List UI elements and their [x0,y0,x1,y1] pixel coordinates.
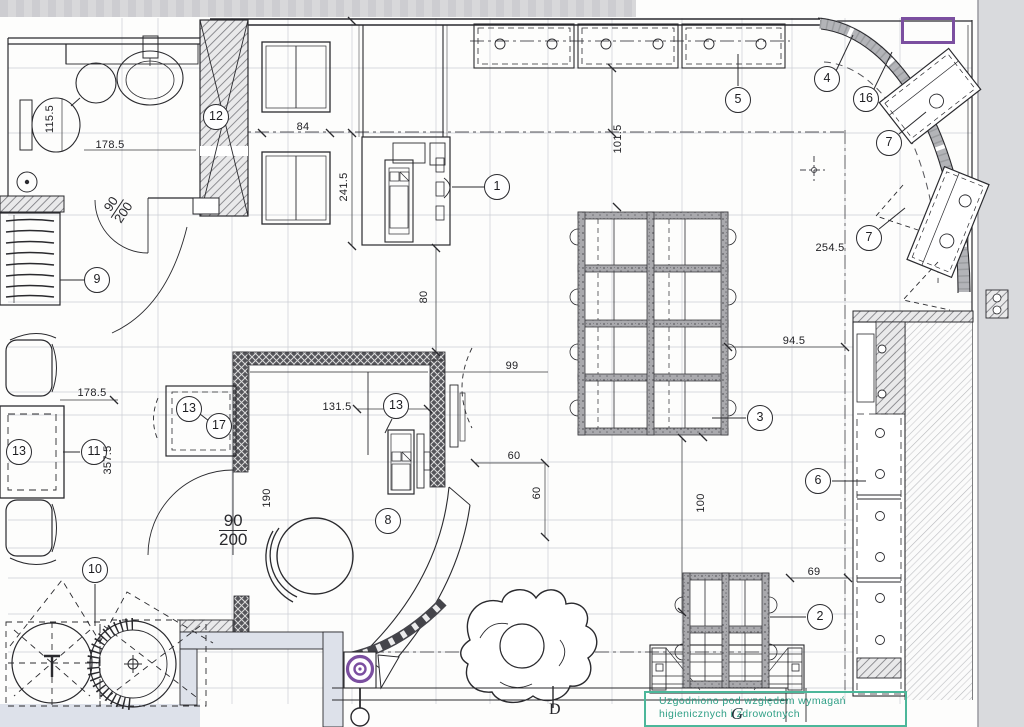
callout-12: 12 [203,104,229,130]
dim-84: 84 [281,121,325,133]
door-width: 90 [219,512,247,531]
walls [0,19,972,700]
callout-7a: 7 [876,130,902,156]
callout-1: 1 [484,174,510,200]
floor-plan-scan: 1 2 3 4 5 6 7 7 8 9 10 11 12 13 13 13 16… [0,0,1024,727]
dim-60-v: 60 [531,471,543,515]
table-block-2 [675,573,777,688]
handwritten-mark: G [731,704,743,724]
dim-69: 69 [792,566,836,578]
chair [6,500,52,556]
dim-115-5: 115.5 [44,97,56,141]
grid-axis-letter: D [549,701,561,719]
dim-254-5: 254.5 [808,242,852,254]
dimension-lines [60,68,848,614]
callout-5: 5 [725,87,751,113]
callout-16: 16 [853,86,879,112]
dim-94-5: 94.5 [772,335,816,347]
revision-highlight-box [901,17,955,44]
sculptural-seat-sketch [461,590,597,703]
toilet-bowl [32,98,80,152]
callout-7b: 7 [856,225,882,251]
stamp-line-1: Uzgodniono pod względem wymagań [659,695,905,707]
basin [76,63,116,103]
callout-13b: 13 [176,396,202,422]
chair [6,340,52,396]
leader-lines [60,35,926,626]
callout-17: 17 [206,413,232,439]
door-height: 200 [219,531,247,548]
stamp-line-2: higienicznych i zdrowotnych [659,708,905,720]
dim-131-5: 131.5 [315,401,359,413]
dim-99: 99 [490,360,534,372]
shelf-unit-9 [0,213,60,305]
dim-60-h: 60 [492,450,536,462]
callout-2: 2 [807,604,833,630]
round-feature-table [90,621,176,707]
dim-241-5: 241.5 [338,165,350,209]
dim-80: 80 [418,275,430,319]
toilet-tank [20,100,32,150]
dim-178-5-bath: 178.5 [88,139,132,151]
dim-100: 100 [695,481,707,525]
callout-8: 8 [375,508,401,534]
dim-357-5: 357.5 [102,438,114,482]
table-block-3 [570,212,736,435]
callout-13c: 13 [383,393,409,419]
callout-9: 9 [84,267,110,293]
door-swing-hall [112,227,187,333]
callout-4: 4 [814,66,840,92]
callout-10: 10 [82,557,108,583]
dim-178-5-hall: 178.5 [70,387,114,399]
door-size-label-bar: 90 200 [219,512,247,549]
callout-13a: 13 [6,439,32,465]
dim-190: 190 [261,476,273,520]
callout-6: 6 [805,468,831,494]
dim-101-5: 101.5 [612,117,624,161]
center-cross-marker [800,156,828,184]
callout-3: 3 [747,405,773,431]
round-table-column [277,518,353,594]
approval-stamp: Uzgodniono pod względem wymagań higienic… [644,691,907,727]
